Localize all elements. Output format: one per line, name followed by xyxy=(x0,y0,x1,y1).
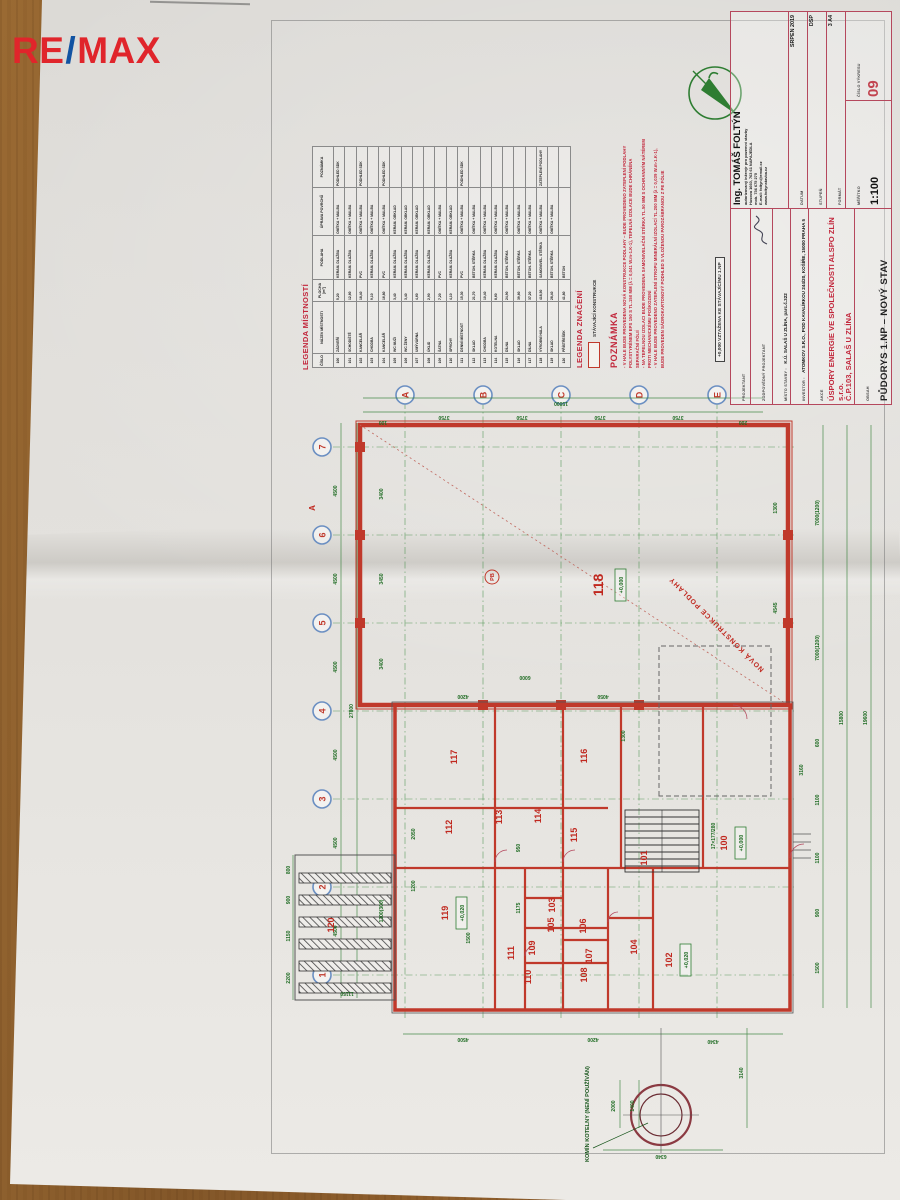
legend-row: 113CHODBA10,40KERAM. DLAŽBAOMÍTKA + MALB… xyxy=(480,147,491,368)
legend-cell: 5,20 xyxy=(334,280,345,302)
legend-row: 118VÝROBNÍ HALA418,50SAMONIVEL. STĚRKAOM… xyxy=(536,147,547,368)
svg-label: 7 xyxy=(318,444,328,449)
zodp-label: ZODPOVĚDNÝ PROJEKTANT xyxy=(762,344,766,401)
svg-label: 100 xyxy=(719,835,729,850)
existing-construction-symbol xyxy=(588,342,600,368)
legend-row: 111DENNÍ MÍSTNOST15,30PVCOMÍTKA + MALBAP… xyxy=(458,147,469,368)
legend-cell xyxy=(345,147,356,188)
legend-cell: 3,40 xyxy=(401,280,412,302)
svg-label: 6000 xyxy=(519,674,530,680)
legend-cell: SKLAD xyxy=(469,302,480,354)
svg-label: 4500 xyxy=(333,749,339,760)
note-line: - V HALE BUDE PROVEDENA NOVÁ KONSTRUKCE … xyxy=(622,136,641,368)
legend-cell: DÍLNA xyxy=(525,302,536,354)
legend-cell: 18,40 xyxy=(356,280,367,302)
symbols-legend-title: LEGENDA ZNAČENÍ xyxy=(575,148,584,368)
remax-slash: / xyxy=(64,30,77,71)
legend-cell: CHODBA xyxy=(480,302,491,354)
legend-row: 109ŠATNA7,20PVCOMÍTKA + MALBA xyxy=(435,147,446,368)
chimney-detail xyxy=(593,1028,699,1153)
legend-cell: DENNÍ MÍSTNOST xyxy=(458,302,469,354)
legend-cell: 120 xyxy=(559,354,571,368)
svg-label: C xyxy=(557,391,567,398)
legend-header: ČÍSLO xyxy=(313,354,334,368)
annotation-texts: NOVÁ KONSTRUKCE PODLAHYKOMÍN KOTELNY (NE… xyxy=(308,505,766,1162)
svg-label: 110 xyxy=(523,970,533,985)
svg-label: 100 xyxy=(379,419,388,425)
obsah-value: PŮDORYS 1.NP – NOVÝ STAV xyxy=(879,260,890,401)
legend-cell: KANCELÁŘ xyxy=(356,302,367,354)
legend-cell: WC MUŽI xyxy=(390,302,401,354)
legend-cell: KERAM. OBKLAD xyxy=(401,188,412,236)
legend-cell: 104 xyxy=(379,354,390,368)
remax-re: RE xyxy=(12,30,64,71)
legend-cell: BETON. STĚRKA xyxy=(503,236,514,280)
legend-cell xyxy=(491,147,502,188)
legend-cell: WC ŽENY xyxy=(401,302,412,354)
svg-label: 2200 xyxy=(286,972,292,983)
legend-cell: PVC xyxy=(435,236,446,280)
paper-sheet: 1234567ABCDE xyxy=(0,0,900,1200)
legend-row: 103CHODBA9,10KERAM. DLAŽBAOMÍTKA + MALBA xyxy=(367,147,378,368)
legend-cell: 113 xyxy=(480,354,491,368)
legend-cell: 16,80 xyxy=(379,280,390,302)
legend-row: 120PŘÍSTŘEŠEK41,80BETON xyxy=(559,147,571,368)
svg-label: 19600 xyxy=(863,711,869,725)
legend-cell: KERAM. OBKLAD xyxy=(446,188,457,236)
legend-cell: KERAM. DLAŽBA xyxy=(367,236,378,280)
legend-row: 107UMÝVÁRNA4,60KERAM. DLAŽBAKERAM. OBKLA… xyxy=(412,147,423,368)
svg-label: 112 xyxy=(444,820,454,835)
legend-cell: 112 xyxy=(469,354,480,368)
svg-label: 1100 xyxy=(815,852,821,863)
symbols-legend: LEGENDA ZNAČENÍ STÁVAJÍCÍ KONSTRUKCE xyxy=(575,148,600,368)
datum-label: DATUM xyxy=(800,191,804,205)
legend-cell: OMÍTKA + MALBA xyxy=(480,188,491,236)
svg-label: 120 xyxy=(326,917,336,932)
svg-label: 11150 xyxy=(340,990,354,996)
stupen-value: DSP xyxy=(809,15,815,26)
legend-cell: KOTELNA xyxy=(491,302,502,354)
legend-cell: 107 xyxy=(412,354,423,368)
legend-row: 105WC MUŽI3,40KERAM. DLAŽBAKERAM. OBKLAD xyxy=(390,147,401,368)
svg-label: 4500 xyxy=(333,661,339,672)
svg-label: 3450 xyxy=(379,573,385,584)
svg-label: 4200 xyxy=(457,693,468,699)
svg-label: 117 xyxy=(449,750,459,765)
svg-label: 7000(1200) xyxy=(815,635,821,661)
legend-cell xyxy=(469,147,480,188)
legend-cell: KERAM. DLAŽBA xyxy=(424,236,435,280)
projektant-label: PROJEKTANT xyxy=(742,374,746,401)
legend-cell: VÝROBNÍ HALA xyxy=(536,302,547,354)
legend-cell: 111 xyxy=(458,354,469,368)
legend-cell: OMÍTKA + MALBA xyxy=(491,188,502,236)
svg-label: 108 xyxy=(579,967,589,982)
legend-cell: OMÍTKA + MALBA xyxy=(458,188,469,236)
engineer-cell: Ing. TOMÁŠ FOLTÝN autorizovaný inženýr p… xyxy=(731,12,789,208)
projektant-cell: PROJEKTANT MICHAELA VELCEROVÁ xyxy=(731,209,751,404)
svg-label: 113 xyxy=(494,810,504,825)
misto-value: K.Ú. SALAŠ U ZLÍNA, parc.č.322 xyxy=(783,293,788,363)
meritko-cell: MĚŘÍTKO 1:100 xyxy=(846,100,891,208)
datum-value: SRPEN 2019 xyxy=(790,15,796,47)
legend-cell: 9,10 xyxy=(367,280,378,302)
legend-cell: BETON xyxy=(559,236,571,280)
svg-label: 3 xyxy=(318,796,328,801)
legend-row: 115DÍLNA24,90BETON. STĚRKAOMÍTKA + MALBA xyxy=(503,147,514,368)
legend-cell: OMÍTKA + MALBA xyxy=(503,188,514,236)
svg-label: +0,020 xyxy=(460,905,466,922)
legend-cell xyxy=(559,147,571,188)
cislo-value: 09 xyxy=(865,80,882,97)
svg-label: 1 xyxy=(318,972,328,977)
svg-label: 102 xyxy=(664,952,674,967)
svg-label: 3160 xyxy=(799,764,805,775)
datum-reference-note: +0,000 VZTAŽENA KE STÁVAJÍCÍMU 1.NP xyxy=(715,257,725,362)
legend-row: 117DÍLNA37,20BETON. STĚRKAOMÍTKA + MALBA xyxy=(525,147,536,368)
legend-cell: 108 xyxy=(424,354,435,368)
legend-header: NÁZEV MÍSTNOSTI xyxy=(313,302,334,354)
legend-cell: 28,40 xyxy=(548,280,559,302)
svg-label: 105 xyxy=(546,917,556,932)
svg-label: 27800 xyxy=(349,704,355,718)
legend-cell: 418,50 xyxy=(536,280,547,302)
svg-label: PB xyxy=(490,573,496,581)
remax-logo: RE/MAX xyxy=(12,30,161,72)
obsah-cell: OBSAH PŮDORYS 1.NP – NOVÝ STAV xyxy=(855,209,891,404)
legend-cell: KERAM. DLAŽBA xyxy=(412,236,423,280)
legend-cell: CHODBA xyxy=(367,302,378,354)
legend-cell: 100 xyxy=(334,354,345,368)
svg-label: 116 xyxy=(579,749,589,764)
svg-label: 17×177/280 xyxy=(711,823,717,850)
legend-cell: OMÍTKA + MALBA xyxy=(525,188,536,236)
existing-construction-label: STÁVAJÍCÍ KONSTRUKCE xyxy=(592,280,597,337)
legend-cell: BETON. STĚRKA xyxy=(469,236,480,280)
hall-walls xyxy=(355,421,793,710)
format-label: FORMÁT xyxy=(838,188,842,205)
legend-title: LEGENDA MÍSTNOSTÍ xyxy=(301,284,310,370)
svg-label: 1300(300) xyxy=(379,899,385,922)
svg-label: +0,000 xyxy=(739,835,745,852)
legend-cell: 4,10 xyxy=(446,280,457,302)
svg-label: 4500 xyxy=(333,837,339,848)
format-value: 3 A4 xyxy=(828,15,834,26)
legend-row: 116SKLAD39,60BETON. STĚRKAOMÍTKA + MALBA xyxy=(514,147,525,368)
legend-cell xyxy=(559,188,571,236)
legend-row: 108ÚKLID2,90KERAM. DLAŽBAKERAM. OBKLAD xyxy=(424,147,435,368)
legend-cell: 37,20 xyxy=(525,280,536,302)
akce-label: AKCE xyxy=(820,389,824,401)
cislo-vykresu-cell: ČÍSLO VÝKRESU 09 xyxy=(846,12,891,100)
legend-cell: 39,60 xyxy=(514,280,525,302)
legend-cell: 3,40 xyxy=(390,280,401,302)
legend-cell: BETON. STĚRKA xyxy=(525,236,536,280)
legend-row: 101SCHODIŠTĚ12,60KERAM. DLAŽBAOMÍTKA + M… xyxy=(345,147,356,368)
legend-cell: SPRCHY xyxy=(446,302,457,354)
legend-cell xyxy=(424,147,435,188)
legend-cell: ŠATNA xyxy=(435,302,446,354)
legend-header: PODLAHA xyxy=(313,236,334,280)
svg-label: 115 xyxy=(569,828,579,843)
svg-label: 15800 xyxy=(839,711,845,725)
misto-label: MÍSTO STAVBY : xyxy=(784,368,788,401)
svg-label: 900 xyxy=(286,896,292,905)
svg-label: 1100 xyxy=(815,794,821,805)
legend-cell: 103 xyxy=(367,354,378,368)
legend-cell xyxy=(548,147,559,188)
legend-cell: PODHLED SDK xyxy=(379,147,390,188)
legend-cell: 109 xyxy=(435,354,446,368)
legend-cell: 105 xyxy=(390,354,401,368)
svg-label: 103 xyxy=(547,897,557,912)
engineer-sub5: www.foltynstavba.cz xyxy=(763,15,768,205)
legend-cell: PVC xyxy=(356,236,367,280)
legend-cell: KANCELÁŘ xyxy=(379,302,390,354)
akce-line2: Č.P.103, SALAŠ U ZLÍNA xyxy=(845,212,854,401)
legend-cell: 115 xyxy=(503,354,514,368)
svg-label: 107 xyxy=(584,948,594,963)
legend-cell: OMÍTKA + MALBA xyxy=(334,188,345,236)
svg-label: 4050 xyxy=(597,693,608,699)
legend-cell: PŘÍSTŘEŠEK xyxy=(559,302,571,354)
legend-cell: OMÍTKA + MALBA xyxy=(435,188,446,236)
legend-cell: KERAM. DLAŽBA xyxy=(401,236,412,280)
legend-cell: KERAM. DLAŽBA xyxy=(446,236,457,280)
stupen-label: STUPEŇ xyxy=(819,188,823,205)
svg-label: 114 xyxy=(533,809,543,824)
legend-cell: PVC xyxy=(458,236,469,280)
legend-cell: KERAM. DLAŽBA xyxy=(345,236,356,280)
legend-cell xyxy=(390,147,401,188)
svg-label: 1300 xyxy=(773,502,779,513)
svg-label: 4340 xyxy=(707,1038,718,1044)
svg-label: 104 xyxy=(629,939,639,954)
svg-label: 1400 xyxy=(630,1100,636,1111)
svg-label: 101 xyxy=(639,850,649,865)
remax-max: MAX xyxy=(77,30,161,71)
svg-label: 1150 xyxy=(286,930,292,941)
legend-cell: ZÁDVEŘÍ xyxy=(334,302,345,354)
svg-label: 4 xyxy=(318,708,328,713)
svg-label: A xyxy=(308,505,317,511)
legend-header-row: ČÍSLONÁZEV MÍSTNOSTIPLOCHA [m²]PODLAHAÚP… xyxy=(313,147,334,368)
legend-cell xyxy=(412,147,423,188)
legend-cell: 12,60 xyxy=(345,280,356,302)
legend-cell: OMÍTKA + MALBA xyxy=(345,188,356,236)
notes-section: POZNÁMKA - V HALE BUDE PROVEDENA NOVÁ KO… xyxy=(609,136,666,368)
svg-label: 3400 xyxy=(379,658,385,669)
svg-label: 3750 xyxy=(672,414,683,420)
svg-label: 200 xyxy=(739,419,748,425)
legend-cell xyxy=(525,147,536,188)
dimension-chains xyxy=(293,398,871,1150)
zodp-projektant-cell: ZODPOVĚDNÝ PROJEKTANT ING. TOMÁŠ FOLTÝN xyxy=(751,209,773,404)
legend-cell xyxy=(503,147,514,188)
legend-cell: ÚKLID xyxy=(424,302,435,354)
legend-cell: 101 xyxy=(345,354,356,368)
legend-cell xyxy=(514,147,525,188)
engineer-name: Ing. TOMÁŠ FOLTÝN xyxy=(732,15,743,205)
legend-header: POZNÁMKA xyxy=(313,147,334,188)
legend-cell: 21,70 xyxy=(469,280,480,302)
notes-title: POZNÁMKA xyxy=(609,136,619,368)
svg-label: 4500 xyxy=(457,1036,468,1042)
legend-cell: KERAM. OBKLAD xyxy=(412,188,423,236)
legend-cell: 116 xyxy=(514,354,525,368)
legend-cell xyxy=(480,147,491,188)
meritko-label: MĚŘÍTKO xyxy=(857,186,861,205)
svg-label: 4545 xyxy=(773,602,779,613)
svg-label: 6 xyxy=(318,532,328,537)
svg-label: 1175 xyxy=(516,902,522,913)
legend-row: 110SPRCHY4,10KERAM. DLAŽBAKERAM. OBKLAD xyxy=(446,147,457,368)
meritko-value: 1:100 xyxy=(869,177,881,205)
legend-cell: PODHLED SDK xyxy=(334,147,345,188)
svg-label: B xyxy=(479,391,489,398)
svg-label: 6340 xyxy=(655,1153,666,1159)
legend-cell: 102 xyxy=(356,354,367,368)
stupen-cell: STUPEŇ DSP xyxy=(808,12,827,208)
obsah-label: OBSAH xyxy=(866,386,870,401)
svg-label: 2 xyxy=(318,884,328,889)
svg-label: 3750 xyxy=(516,414,527,420)
svg-label: KOMÍN KOTELNY (NENÍ POUŽÍVÁN) xyxy=(583,1066,591,1162)
svg-label: 600 xyxy=(815,739,821,748)
legend-cell xyxy=(367,147,378,188)
svg-label: +0,020 xyxy=(684,952,690,969)
svg-label: A xyxy=(401,391,411,398)
investor-label: INVESTOR : xyxy=(802,377,806,401)
akce-cell: AKCE ÚSPORY ENERGIE VE SPOLEČNOSTI ALSPO… xyxy=(809,209,855,404)
svg-label: 2050 xyxy=(411,828,417,839)
investor-value: ATOMKOV S.R.O., POD KAVALÍRKOU 244/20, K… xyxy=(801,219,806,373)
datum-cell: DATUM SRPEN 2019 xyxy=(789,12,808,208)
svg-label: 4200 xyxy=(587,1036,598,1042)
svg-label: 2000 xyxy=(611,1100,617,1111)
akce-line1: ÚSPORY ENERGIE VE SPOLEČNOSTI ALSPO ZLÍN… xyxy=(828,212,845,401)
legend-cell: OMÍTKA + MALBA xyxy=(536,188,547,236)
svg-label: 7000(1200) xyxy=(815,500,821,526)
investor-cell: INVESTOR : ATOMKOV S.R.O., POD KAVALÍRKO… xyxy=(791,209,809,404)
legend-cell: PVC xyxy=(379,236,390,280)
drawing-sheet: 1234567ABCDE xyxy=(263,8,893,1168)
svg-label: 1500 xyxy=(815,962,821,973)
legend-row: 114KOTELNA8,60KERAM. DLAŽBAOMÍTKA + MALB… xyxy=(491,147,502,368)
legend-cell: PODHLED SDK xyxy=(356,147,367,188)
legend-cell: 117 xyxy=(525,354,536,368)
legend-cell: 110 xyxy=(446,354,457,368)
legend-cell: 119 xyxy=(548,354,559,368)
svg-label: 800 xyxy=(286,866,292,875)
signature-scribble xyxy=(753,213,771,247)
legend-cell: 118 xyxy=(536,354,547,368)
legend-cell: KERAM. OBKLAD xyxy=(424,188,435,236)
note-line: - NA TEPELNOU IZOLACI BUDE PROVEDENA SAM… xyxy=(641,136,654,368)
legend-cell xyxy=(446,147,457,188)
svg-label: +0,000 xyxy=(619,577,625,594)
svg-label: 1300 xyxy=(621,730,627,741)
legend-cell: 8,60 xyxy=(491,280,502,302)
legend-cell: KERAM. OBKLAD xyxy=(390,188,401,236)
legend-cell: OMÍTKA + MALBA xyxy=(379,188,390,236)
legend-cell: 24,90 xyxy=(503,280,514,302)
dimension-labels: 4500450045004500450045002780037503750375… xyxy=(286,400,869,1159)
legend-row: 119SKLAD28,40BETON. STĚRKAOMÍTKA + MALBA xyxy=(548,147,559,368)
legend-cell: SAMONIVEL. STĚRKA xyxy=(536,236,547,280)
svg-label: 3750 xyxy=(594,414,605,420)
legend-cell: OMÍTKA + MALBA xyxy=(356,188,367,236)
svg-label: 5 xyxy=(318,620,328,625)
legend-cell: OMÍTKA + MALBA xyxy=(548,188,559,236)
legend-cell: 15,30 xyxy=(458,280,469,302)
room-legend-table: ČÍSLONÁZEV MÍSTNOSTIPLOCHA [m²]PODLAHAÚP… xyxy=(312,147,571,368)
legend-cell: OMÍTKA + MALBA xyxy=(367,188,378,236)
legend-row: 102KANCELÁŘ18,40PVCOMÍTKA + MALBAPODHLED… xyxy=(356,147,367,368)
legend-cell: SCHODIŠTĚ xyxy=(345,302,356,354)
svg-label: 111 xyxy=(506,946,516,960)
legend-row: 106WC ŽENY3,40KERAM. DLAŽBAKERAM. OBKLAD xyxy=(401,147,412,368)
svg-label: 1500 xyxy=(466,932,472,943)
title-block: PROJEKTANT MICHAELA VELCEROVÁ ZODPOVĚDNÝ… xyxy=(730,11,892,405)
legend-row: 112SKLAD21,70BETON. STĚRKAOMÍTKA + MALBA xyxy=(469,147,480,368)
legend-cell xyxy=(435,147,446,188)
svg-label: 3400 xyxy=(379,488,385,499)
cislo-label: ČÍSLO VÝKRESU xyxy=(857,63,861,97)
svg-label: 3750 xyxy=(438,414,449,420)
legend-cell: 4,60 xyxy=(412,280,423,302)
legend-cell: UMÝVÁRNA xyxy=(412,302,423,354)
svg-label: 900 xyxy=(815,909,821,918)
legend-cell: 2,90 xyxy=(424,280,435,302)
svg-label: 950 xyxy=(516,844,522,853)
svg-label: D xyxy=(635,391,645,398)
format-cell: FORMÁT 3 A4 xyxy=(827,12,846,208)
svg-label: 15000 xyxy=(554,400,568,406)
legend-cell: 10,40 xyxy=(480,280,491,302)
legend-row: 104KANCELÁŘ16,80PVCOMÍTKA + MALBAPODHLED… xyxy=(379,147,390,368)
photo-stage: 1234567ABCDE xyxy=(0,0,900,1200)
legend-cell: 114 xyxy=(491,354,502,368)
legend-cell: KERAM. DLAŽBA xyxy=(390,236,401,280)
svg-label: 3140 xyxy=(739,1067,745,1078)
svg-label: 118 xyxy=(590,573,606,596)
legend-header: ÚPRAVA POVRCHŮ xyxy=(313,188,334,236)
legend-cell: KERAM. DLAŽBA xyxy=(491,236,502,280)
legend-cell: SKLAD xyxy=(548,302,559,354)
legend-row: 100ZÁDVEŘÍ5,20KERAM. DLAŽBAOMÍTKA + MALB… xyxy=(334,147,345,368)
legend-header: PLOCHA [m²] xyxy=(313,280,334,302)
svg-label: E xyxy=(713,392,723,398)
legend-cell: 106 xyxy=(401,354,412,368)
svg-label: 4500 xyxy=(333,573,339,584)
legend-cell xyxy=(401,147,412,188)
svg-label: 106 xyxy=(578,918,588,933)
legend-cell: BETON. STĚRKA xyxy=(548,236,559,280)
room-block-walls xyxy=(392,646,811,1013)
legend-cell: OMÍTKA + MALBA xyxy=(469,188,480,236)
legend-cell: 41,80 xyxy=(559,280,571,302)
second-sheet-edge xyxy=(150,1,250,6)
svg-label: 119 xyxy=(440,906,450,921)
porch-120 xyxy=(295,855,395,1000)
legend-cell: 7,20 xyxy=(435,280,446,302)
legend-cell: OMÍTKA + MALBA xyxy=(514,188,525,236)
note-line: - V HALE BUDE PROVEDENO ZATEPLENÍ STROPU… xyxy=(653,136,666,368)
legend-cell: KERAM. DLAŽBA xyxy=(334,236,345,280)
misto-stavby-cell: MÍSTO STAVBY : K.Ú. SALAŠ U ZLÍNA, parc.… xyxy=(773,209,791,404)
